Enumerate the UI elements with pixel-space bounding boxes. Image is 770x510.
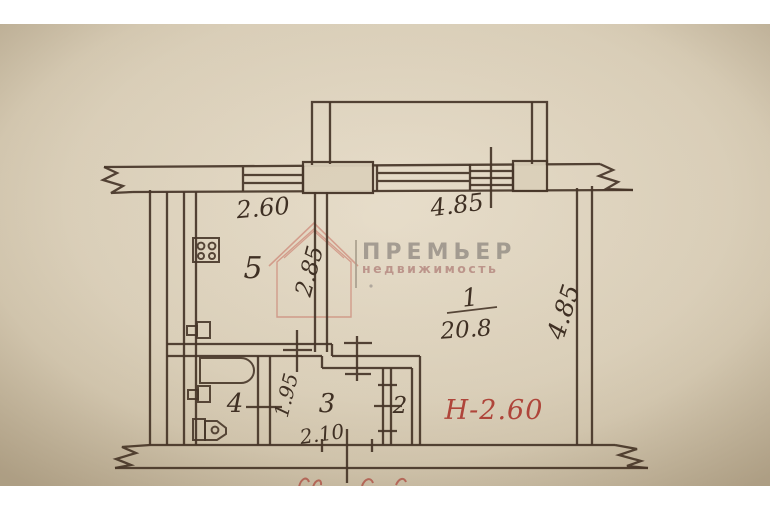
scan-margin-top (0, 0, 770, 24)
scan-vignette (0, 24, 770, 486)
floor-plan-svg: ПРЕМЬЕР недвижимость (0, 0, 770, 510)
scan-margin-bottom (0, 486, 770, 510)
scanned-floor-plan: ПРЕМЬЕР недвижимость (0, 0, 770, 510)
